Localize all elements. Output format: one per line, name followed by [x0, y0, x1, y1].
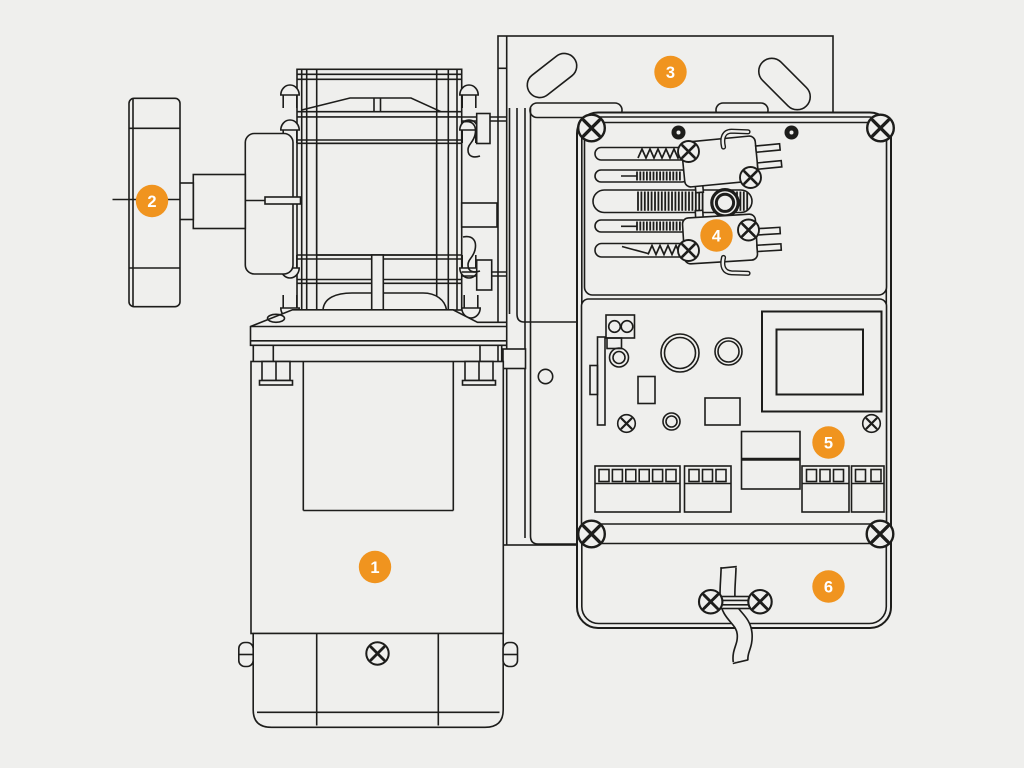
- phillips-screw-icon: [678, 141, 699, 162]
- dome-nut-icon: [462, 295, 480, 318]
- phillips-screw-icon: [578, 521, 605, 548]
- callout-4: 4: [700, 219, 732, 251]
- callout-6: 6: [812, 570, 844, 602]
- side-bolt-icon: [503, 643, 517, 667]
- switch-terminal-pin: [757, 161, 781, 170]
- drive-shaft: [179, 175, 245, 229]
- callout-1: 1: [359, 551, 391, 583]
- phillips-screw-icon: [678, 240, 699, 261]
- dome-nut-icon: [460, 85, 478, 108]
- control-enclosure: [577, 113, 894, 664]
- motor-body: [251, 345, 503, 633]
- svg-text:3: 3: [666, 64, 675, 82]
- svg-text:6: 6: [824, 578, 833, 596]
- svg-text:2: 2: [147, 193, 156, 211]
- phillips-screw-icon: [738, 220, 759, 241]
- phillips-screw-icon: [618, 415, 636, 433]
- bracket-hole: [538, 369, 552, 383]
- phillips-screw-icon: [748, 590, 771, 613]
- panel-hole-icon: [785, 126, 799, 140]
- relay: [742, 432, 801, 490]
- switch-terminal-pin: [756, 144, 780, 153]
- adjustment-nut-inner: [716, 194, 733, 211]
- hex-bolt-icon: [463, 362, 496, 386]
- motor-end-cap: [239, 634, 518, 728]
- phillips-screw-icon: [863, 415, 881, 433]
- phillips-screw-icon: [699, 590, 722, 613]
- dome-nut-icon: [281, 85, 299, 108]
- hex-bolt-icon: [260, 362, 293, 386]
- svg-text:1: 1: [370, 559, 379, 577]
- switch-terminal-pin: [757, 244, 781, 252]
- callout-5: 5: [812, 426, 844, 458]
- control-board: [582, 299, 887, 544]
- svg-text:4: 4: [712, 227, 722, 245]
- phillips-screw-icon: [366, 642, 388, 664]
- shaft-key-slot: [265, 197, 301, 204]
- gate-operator-technical-diagram: 123456: [0, 0, 1024, 768]
- limit-switch-panel: [585, 123, 887, 296]
- phillips-screw-icon: [867, 521, 894, 548]
- panel-hole-icon: [672, 126, 686, 140]
- fan-housing: [323, 293, 447, 310]
- motor-flange: [251, 310, 526, 369]
- phillips-screw-icon: [740, 167, 761, 188]
- phillips-screw-icon: [867, 115, 894, 142]
- diagram-page: 123456: [0, 0, 1024, 768]
- callout-3: 3: [654, 56, 686, 88]
- side-bolt-icon: [239, 643, 253, 667]
- svg-text:5: 5: [824, 434, 833, 452]
- dome-nut-icon: [460, 255, 478, 278]
- callout-2: 2: [136, 185, 168, 217]
- phillips-screw-icon: [578, 115, 605, 142]
